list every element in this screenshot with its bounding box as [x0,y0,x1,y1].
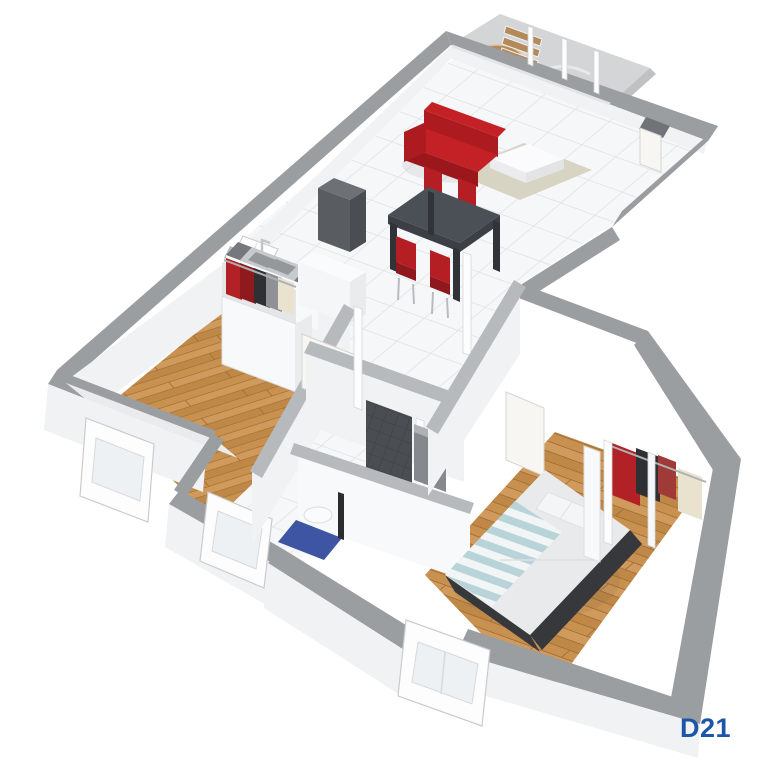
entry-door-leaf [640,128,661,172]
wardrobe2-front-panel [584,446,600,562]
towel-bar [338,492,344,540]
tall-kitchen-unit [318,178,366,252]
bedroom2-door-leaf [506,392,544,476]
wardrobe2-partition-1 [604,440,612,545]
bedroom2-corner-cap [634,331,741,470]
washbasin [304,507,332,523]
unit-label: D21 [680,713,731,743]
wardrobe2-partition-2 [648,452,655,548]
floorplan-render: D21 [0,0,763,768]
bedroom2-ne-wall-cap [516,284,648,345]
floorplan-canvas: D21 [0,0,763,768]
wardrobe2-clothes-red2 [658,455,676,500]
